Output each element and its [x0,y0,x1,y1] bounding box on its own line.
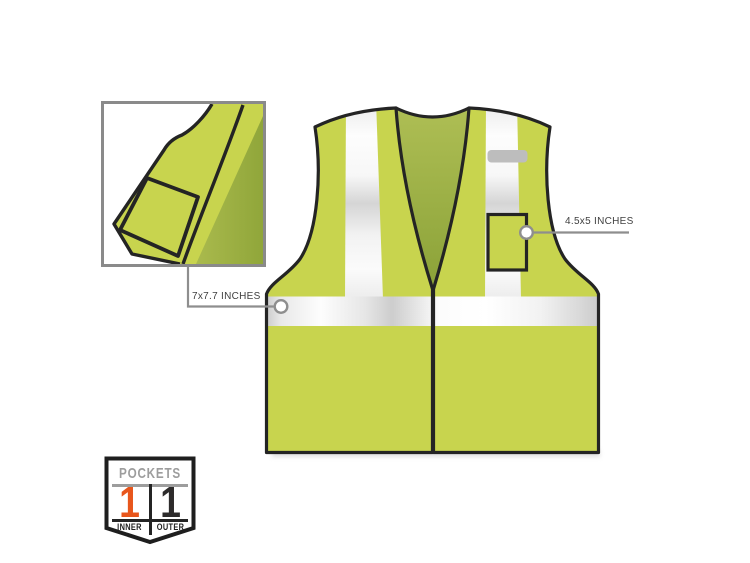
inner-pocket-detail-art [104,104,263,264]
outer-pocket-dimension-label: 4.5x5 INCHES [565,216,634,227]
inner-pocket-count: 1 [114,485,145,520]
badge-divider-vertical [149,484,152,535]
callout-marker-outer-pocket [520,226,533,239]
outer-badge-pocket [488,215,527,271]
inner-pocket-detail-inset [101,101,266,267]
inner-pocket-cell-label: INNER [114,522,144,532]
product-diagram-canvas: 7x7.7 INCHES 4.5x5 INCHES POCKETS 1 1 IN… [0,0,750,563]
pockets-count-badge: POCKETS 1 1 INNER OUTER [103,455,197,545]
callout-marker-inner-pocket [275,300,288,313]
mic-tab [488,150,528,163]
outer-pocket-cell-label: OUTER [155,522,185,532]
outer-pocket-count: 1 [155,485,186,520]
inner-pocket-dimension-label: 7x7.7 INCHES [192,291,261,302]
